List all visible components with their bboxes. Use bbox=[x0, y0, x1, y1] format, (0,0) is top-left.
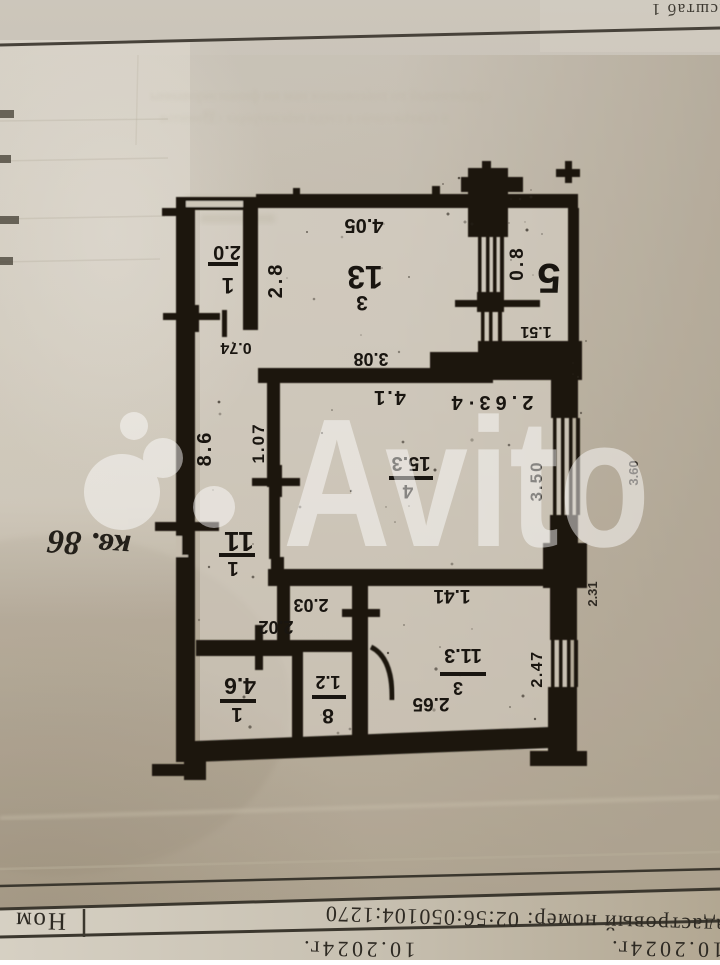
svg-text:1: 1 bbox=[231, 703, 242, 725]
svg-text:11: 11 bbox=[224, 526, 254, 557]
svg-text:1: 1 bbox=[227, 557, 238, 579]
svg-text:8.6: 8.6 bbox=[194, 430, 216, 467]
svg-text:10.2024г.: 10.2024г. bbox=[608, 936, 720, 960]
svg-text:0.74: 0.74 bbox=[220, 339, 251, 356]
svg-text:2.03: 2.03 bbox=[293, 595, 328, 615]
svg-text:Avito: Avito bbox=[283, 382, 650, 585]
svg-text:1: 1 bbox=[222, 273, 234, 298]
svg-text:4.05: 4.05 bbox=[345, 214, 384, 236]
svg-text:Ном: Ном bbox=[14, 907, 66, 935]
svg-text:ыннавориснаниф ни ман юинавозà: ыннавориснаниф ни ман юинавозàоπ оπ йынн… bbox=[150, 88, 491, 104]
svg-text:13: 13 bbox=[347, 259, 383, 295]
svg-text:0.8: 0.8 bbox=[507, 245, 528, 280]
svg-text:2.47: 2.47 bbox=[529, 650, 546, 687]
svg-text:4.6: 4.6 bbox=[224, 673, 256, 699]
svg-text:3.08: 3.08 bbox=[353, 349, 388, 369]
svg-text:2.0: 2.0 bbox=[213, 241, 241, 263]
svg-text:2.8: 2.8 bbox=[265, 262, 287, 299]
svg-text:1.2: 1.2 bbox=[315, 672, 340, 692]
svg-text:вотнɘм程ɔ хıqнqvɐнɔdɘπ идɘvɔ: вотнɘм程ɔ хıqнqvɐнɔdɘπ идɘvɔ в ончиvжdɘжǝ… bbox=[160, 110, 449, 126]
svg-text:8: 8 bbox=[322, 704, 334, 727]
svg-text:1.41: 1.41 bbox=[433, 585, 470, 606]
svg-text:3: 3 bbox=[453, 678, 463, 698]
svg-text:2.65: 2.65 bbox=[412, 693, 449, 714]
svg-text:2.02: 2.02 bbox=[258, 617, 293, 637]
svg-text:3: 3 bbox=[356, 291, 368, 314]
svg-text:5: 5 bbox=[537, 255, 560, 302]
svg-text:1.07: 1.07 bbox=[249, 422, 268, 463]
svg-text:Масштаб 1: Масштаб 1 bbox=[650, 0, 720, 19]
svg-text:10.2024г.: 10.2024г. bbox=[300, 936, 415, 960]
svg-text:1.51: 1.51 bbox=[520, 323, 551, 340]
svg-text:11.3: 11.3 bbox=[444, 644, 482, 666]
